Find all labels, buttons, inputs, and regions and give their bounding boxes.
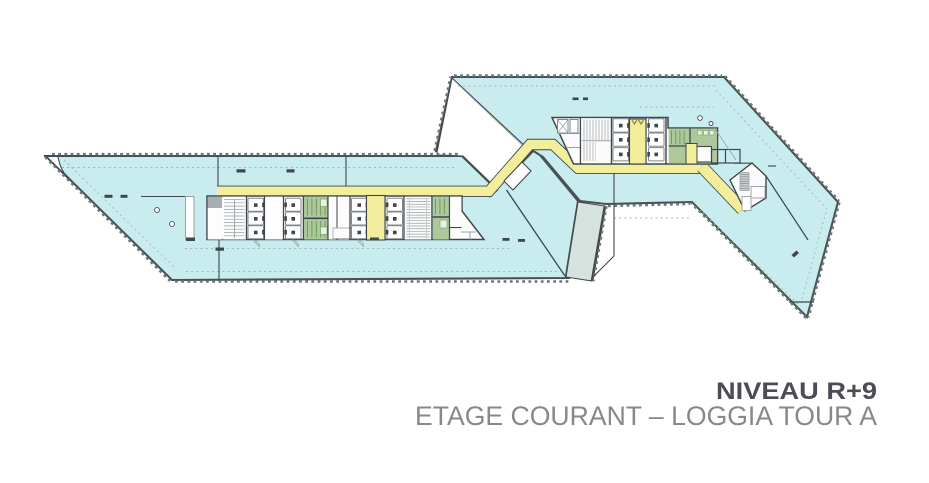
svg-text:ETAGE COURANT – LOGGIA TOUR A: ETAGE COURANT – LOGGIA TOUR A [415,401,877,431]
